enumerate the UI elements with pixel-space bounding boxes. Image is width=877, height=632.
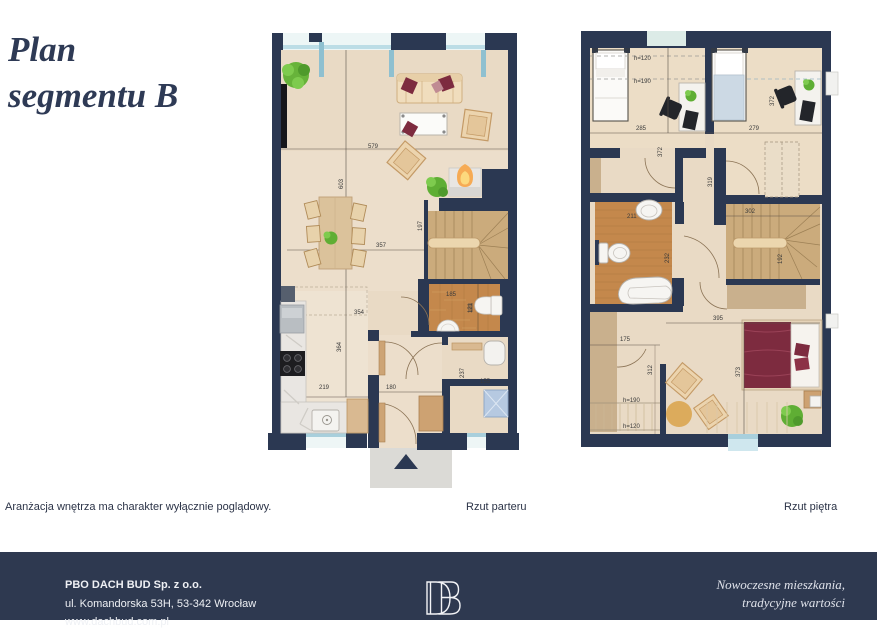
svg-text:180: 180 [386,385,397,391]
svg-text:175: 175 [620,337,631,343]
svg-text:185: 185 [446,292,457,298]
svg-text:197: 197 [418,220,424,231]
svg-text:219: 219 [319,385,330,391]
svg-text:211: 211 [627,214,637,220]
svg-text:312: 312 [648,364,654,375]
svg-text:302: 302 [745,209,756,215]
svg-text:285: 285 [636,126,647,132]
svg-text:h=120: h=120 [623,424,641,430]
svg-text:603: 603 [339,178,345,189]
svg-text:357: 357 [376,243,387,249]
svg-text:h=190: h=190 [623,398,641,404]
svg-text:155: 155 [480,379,491,385]
svg-text:192: 192 [778,253,784,264]
svg-text:579: 579 [368,144,379,150]
svg-text:364: 364 [337,341,343,352]
svg-text:279: 279 [749,126,760,132]
svg-text:372: 372 [658,146,664,157]
svg-text:395: 395 [713,316,724,322]
svg-text:h=120: h=120 [634,56,652,62]
svg-text:232: 232 [665,252,671,263]
svg-text:373: 373 [736,366,742,377]
svg-text:237: 237 [460,367,466,378]
svg-text:354: 354 [354,310,365,316]
svg-text:319: 319 [708,176,714,187]
svg-text:372: 372 [770,95,776,106]
svg-text:121: 121 [468,302,474,313]
svg-text:h=190: h=190 [634,79,652,85]
